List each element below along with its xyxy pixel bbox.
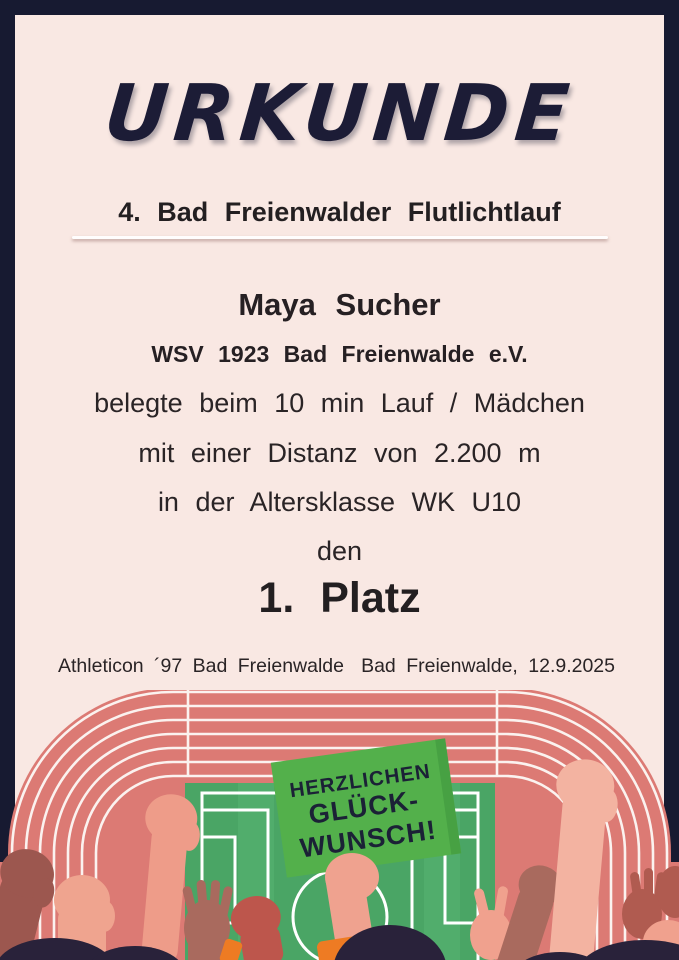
- club-name: WSV 1923 Bad Freienwalde e.V.: [0, 341, 679, 368]
- certificate-title: URKUNDE: [0, 72, 679, 158]
- article-line: den: [0, 536, 679, 567]
- rank-text: 1. Platz: [0, 574, 679, 623]
- footer-row: Athleticon ´97 Bad Freienwalde Bad Freie…: [58, 655, 615, 678]
- place-date: Bad Freienwalde, 12.9.2025: [361, 655, 615, 678]
- stadium-illustration: HERZLICHEN GLÜCK- WUNSCH!: [0, 690, 679, 960]
- organizer-name: Athleticon ´97 Bad Freienwalde: [58, 655, 344, 678]
- recipient-name: Maya Sucher: [0, 287, 679, 323]
- event-name: 4. Bad Freienwalder Flutlichtlauf: [0, 197, 679, 228]
- age-class-line: in der Altersklasse WK U10: [0, 487, 679, 518]
- distance-line: mit einer Distanz von 2.200 m: [0, 438, 679, 469]
- result-line: belegte beim 10 min Lauf / Mädchen: [0, 388, 679, 419]
- certificate-page: URKUNDE 4. Bad Freienwalder Flutlichtlau…: [0, 0, 679, 960]
- divider-line: [72, 236, 608, 239]
